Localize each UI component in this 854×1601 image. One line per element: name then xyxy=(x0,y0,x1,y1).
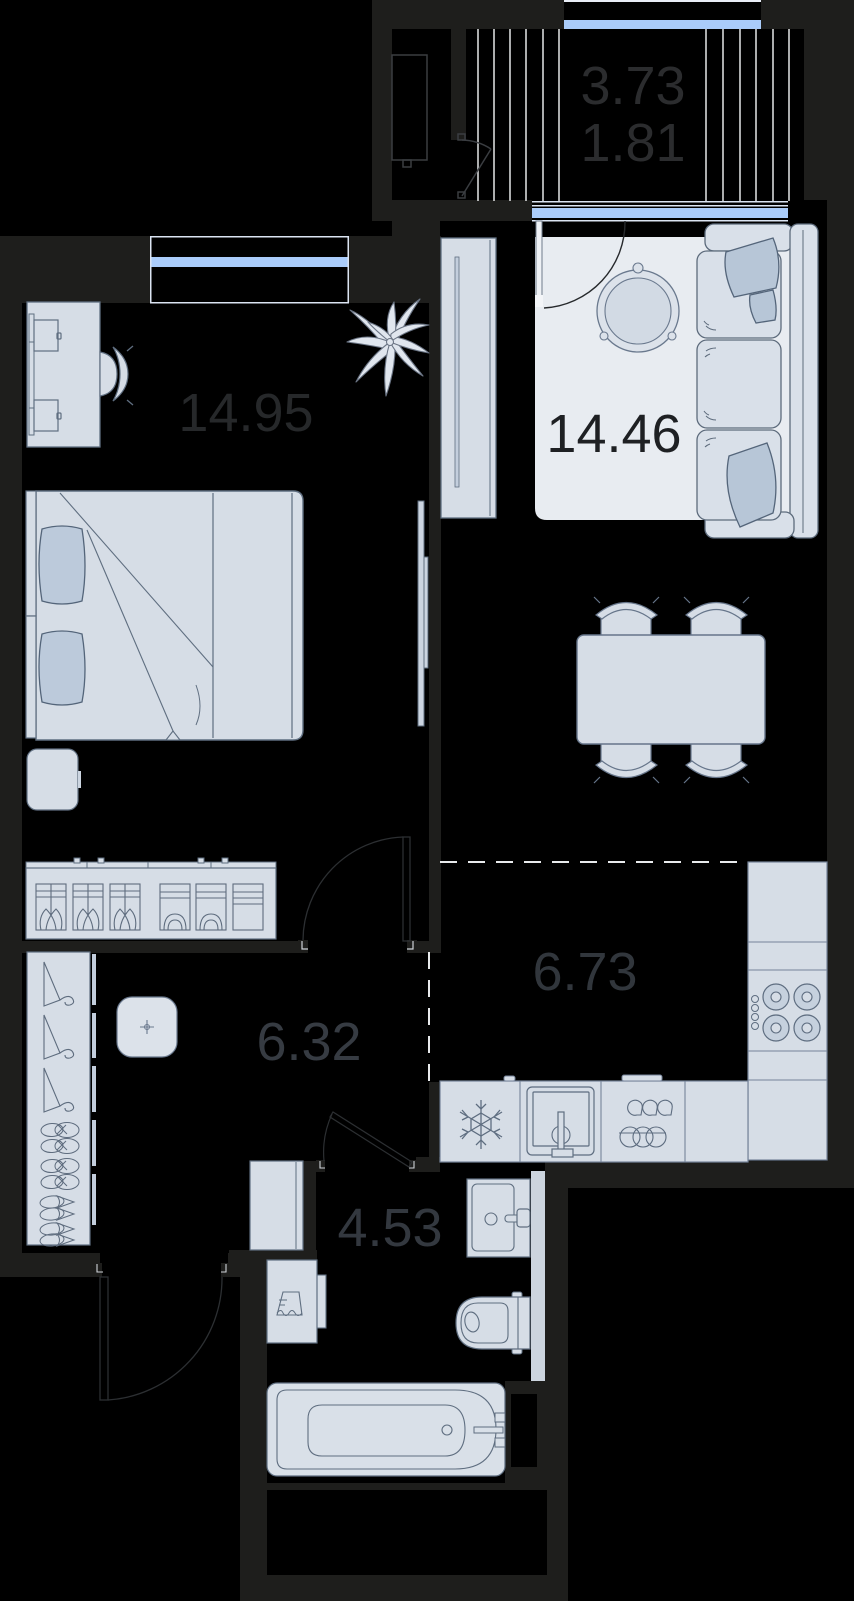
svg-text:3.73: 3.73 xyxy=(580,56,685,116)
svg-text:14.95: 14.95 xyxy=(178,383,313,443)
svg-text:1.81: 1.81 xyxy=(580,113,685,173)
svg-text:6.32: 6.32 xyxy=(256,1012,361,1072)
svg-text:6.73: 6.73 xyxy=(532,942,637,1002)
svg-text:14.46: 14.46 xyxy=(546,404,681,464)
svg-text:4.53: 4.53 xyxy=(337,1198,442,1258)
